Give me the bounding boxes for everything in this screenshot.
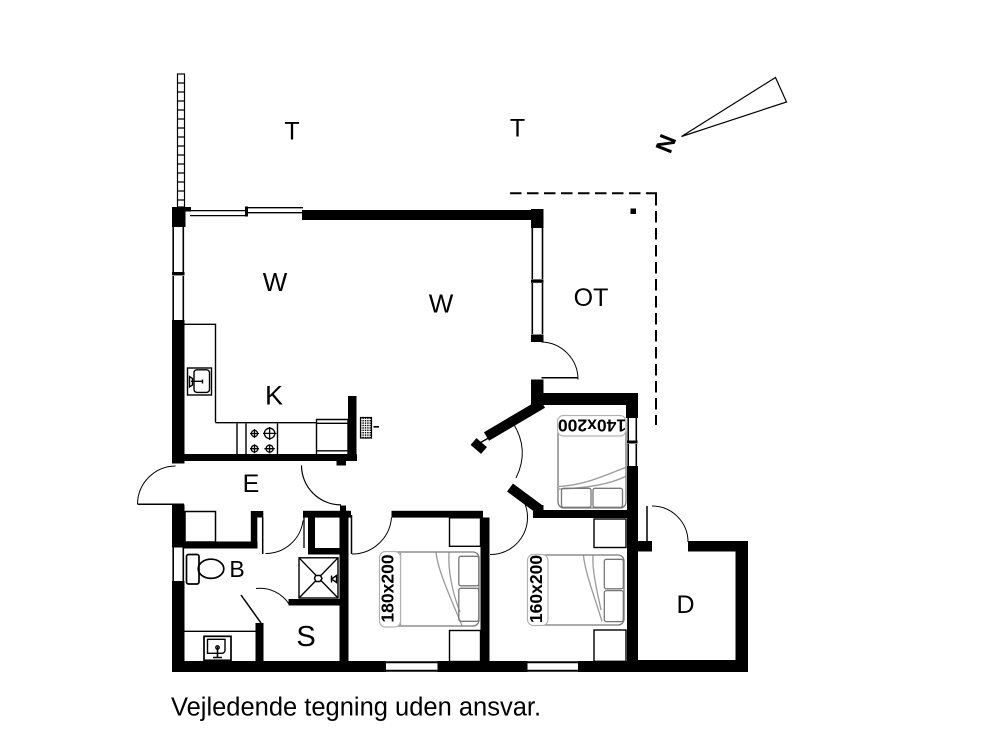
- svg-text:K: K: [265, 381, 283, 411]
- svg-text:W: W: [263, 267, 288, 297]
- svg-text:140x200: 140x200: [558, 416, 626, 436]
- svg-text:T: T: [510, 115, 525, 143]
- svg-text:180x200: 180x200: [378, 554, 398, 622]
- svg-text:OT: OT: [574, 284, 609, 312]
- svg-text:B: B: [229, 556, 244, 582]
- svg-text:W: W: [429, 289, 454, 319]
- svg-text:Vejledende tegning uden ansvar: Vejledende tegning uden ansvar.: [171, 694, 541, 722]
- svg-text:S: S: [296, 621, 315, 653]
- svg-text:E: E: [243, 470, 260, 498]
- svg-text:T: T: [284, 118, 299, 146]
- svg-text:160x200: 160x200: [526, 555, 546, 623]
- svg-text:D: D: [676, 591, 694, 619]
